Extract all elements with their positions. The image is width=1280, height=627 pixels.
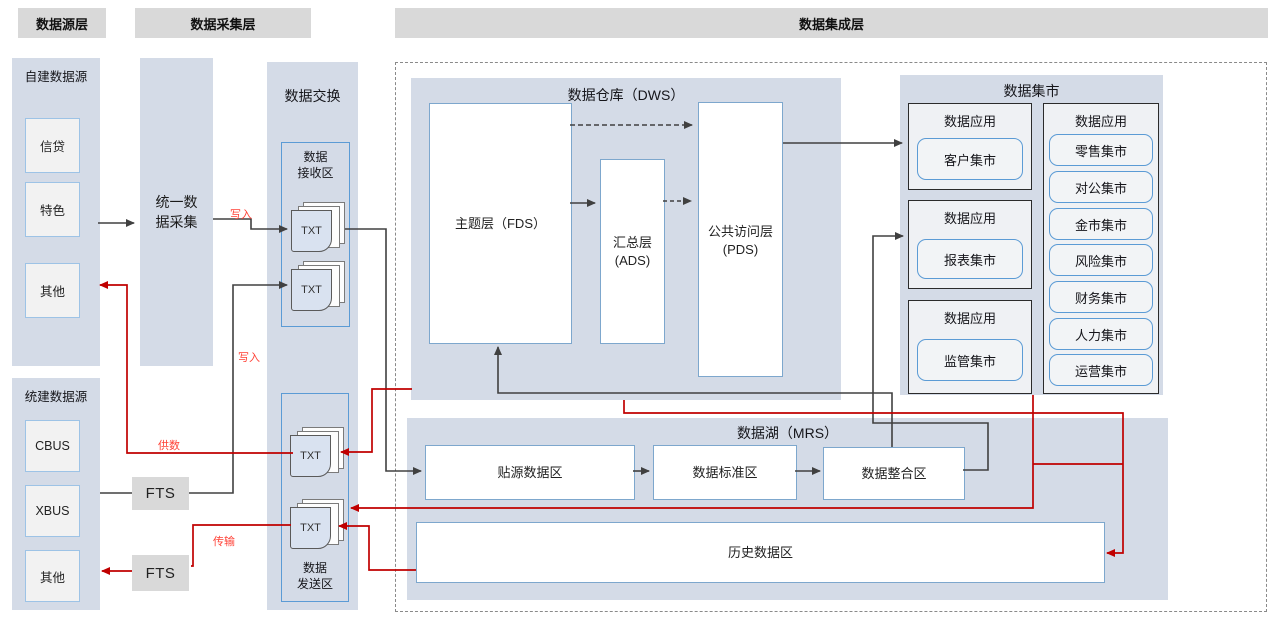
pds-label-line2: (PDS)	[723, 241, 758, 259]
box-fds-subject-layer: 主题层（FDS）	[429, 103, 572, 344]
data-send-area: 数据 发送区	[281, 393, 349, 602]
box-ads-summary-layer: 汇总层 (ADS)	[600, 159, 665, 344]
mart-customer: 客户集市	[917, 138, 1023, 180]
txt-file-stack-send-2: TXT	[290, 499, 344, 549]
mart-risk: 风险集市	[1049, 244, 1153, 276]
app-group-label: 数据应用	[1044, 111, 1158, 130]
header-data-collection-layer: 数据采集层	[135, 8, 311, 38]
app-group-report: 数据应用 报表集市	[908, 200, 1032, 289]
app-group-customer: 数据应用 客户集市	[908, 103, 1032, 190]
txt-file-stack-receive-1: TXT	[291, 202, 345, 252]
box-standard-zone: 数据标准区	[653, 445, 797, 500]
receive-area-label-line2: 接收区	[282, 165, 349, 181]
box-other-self-source: 其他	[25, 263, 80, 318]
header-data-integration-layer: 数据集成层	[395, 8, 1268, 38]
label-write-bottom: 写入	[238, 349, 260, 365]
label-supply: 供数	[158, 437, 180, 453]
app-group-label: 数据应用	[909, 208, 1031, 227]
mart-report: 报表集市	[917, 239, 1023, 279]
app-group-label: 数据应用	[909, 308, 1031, 327]
unified-collection-line1: 统一数	[156, 192, 198, 212]
box-xbus-source: XBUS	[25, 485, 80, 537]
box-special-source: 特色	[25, 182, 80, 237]
self-built-sources-title: 自建数据源	[12, 66, 100, 85]
mart-retail: 零售集市	[1049, 134, 1153, 166]
box-cbus-source: CBUS	[25, 420, 80, 472]
ads-label-line2: (ADS)	[615, 252, 650, 270]
box-source-zone: 贴源数据区	[425, 445, 635, 500]
ads-label-line1: 汇总层	[613, 234, 652, 252]
txt-file-label: TXT	[291, 269, 332, 311]
mrs-title: 数据湖（MRS）	[407, 423, 1168, 443]
mart-corporate: 对公集市	[1049, 171, 1153, 203]
mart-gold: 金市集市	[1049, 208, 1153, 240]
header-data-source-layer: 数据源层	[18, 8, 106, 38]
txt-file-stack-send-1: TXT	[290, 427, 344, 477]
mart-hr: 人力集市	[1049, 318, 1153, 350]
fts-top-box: FTS	[132, 477, 189, 510]
mart-operation: 运营集市	[1049, 354, 1153, 386]
fds-label: 主题层（FDS）	[455, 215, 546, 233]
architecture-diagram: 数据源层 数据采集层 数据集成层 自建数据源 信贷 特色 其他 统建数据源 CB…	[0, 0, 1280, 627]
panel-unified-data-collection: 统一数 据采集	[140, 58, 213, 366]
txt-file-stack-receive-2: TXT	[291, 261, 345, 311]
data-mart-title: 数据集市	[900, 81, 1163, 101]
mart-regulatory: 监管集市	[917, 339, 1023, 381]
box-other-unified-source: 其他	[25, 550, 80, 602]
send-area-label-line2: 发送区	[282, 576, 348, 592]
txt-file-label: TXT	[290, 507, 331, 549]
box-pds-public-access-layer: 公共访问层 (PDS)	[698, 102, 783, 377]
app-group-label: 数据应用	[909, 111, 1031, 130]
box-integrate-zone: 数据整合区	[823, 447, 965, 500]
app-group-regulatory: 数据应用 监管集市	[908, 300, 1032, 394]
unified-collection-line2: 据采集	[156, 212, 198, 232]
txt-file-label: TXT	[291, 210, 332, 252]
label-write-top: 写入	[230, 206, 252, 222]
txt-file-label: TXT	[290, 435, 331, 477]
receive-area-label-line1: 数据	[282, 149, 349, 165]
unified-sources-title: 统建数据源	[12, 386, 100, 405]
send-area-label-line1: 数据	[282, 560, 348, 576]
fts-bottom-box: FTS	[132, 555, 189, 591]
box-history-zone: 历史数据区	[416, 522, 1105, 583]
label-transfer: 传输	[213, 533, 235, 549]
mart-finance: 财务集市	[1049, 281, 1153, 313]
data-exchange-title: 数据交换	[267, 86, 358, 106]
app-group-domain-marts: 数据应用 零售集市 对公集市 金市集市 风险集市 财务集市 人力集市 运营集市	[1043, 103, 1159, 394]
pds-label-line1: 公共访问层	[708, 223, 773, 241]
box-credit-source: 信贷	[25, 118, 80, 173]
